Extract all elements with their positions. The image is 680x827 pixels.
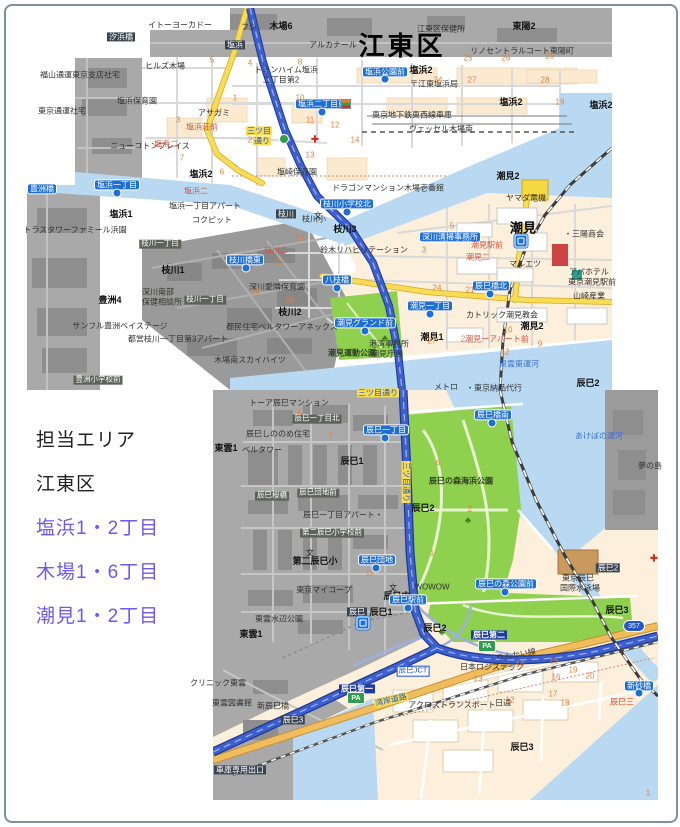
panel-area-kiba: 木場1・6丁目	[36, 557, 159, 584]
map-window-frame: イトーヨーカドーフジ木場6アルカナール江東区保健所東陽2汐浜橋塩浜江東区リノセン…	[4, 4, 678, 823]
map-shapes-north	[27, 8, 612, 390]
panel-ward: 江東区	[36, 469, 159, 496]
assignment-panel: 担当エリア 江東区 塩浜1・2丁目 木場1・6丁目 潮見1・2丁目	[36, 425, 159, 645]
map-label: イトーヨーカドー	[148, 20, 212, 29]
map-piece-north[interactable]	[27, 8, 612, 390]
map-shapes-south	[213, 390, 658, 800]
panel-title: 担当エリア	[36, 425, 159, 452]
map-piece-south[interactable]	[213, 390, 658, 800]
map-stage: イトーヨーカドーフジ木場6アルカナール江東区保健所東陽2汐浜橋塩浜江東区リノセン…	[4, 4, 678, 823]
panel-area-shiomi: 潮見1・2丁目	[36, 601, 159, 628]
panel-area-shiohama: 塩浜1・2丁目	[36, 513, 159, 540]
map-label: 汐浜橋	[107, 32, 135, 41]
